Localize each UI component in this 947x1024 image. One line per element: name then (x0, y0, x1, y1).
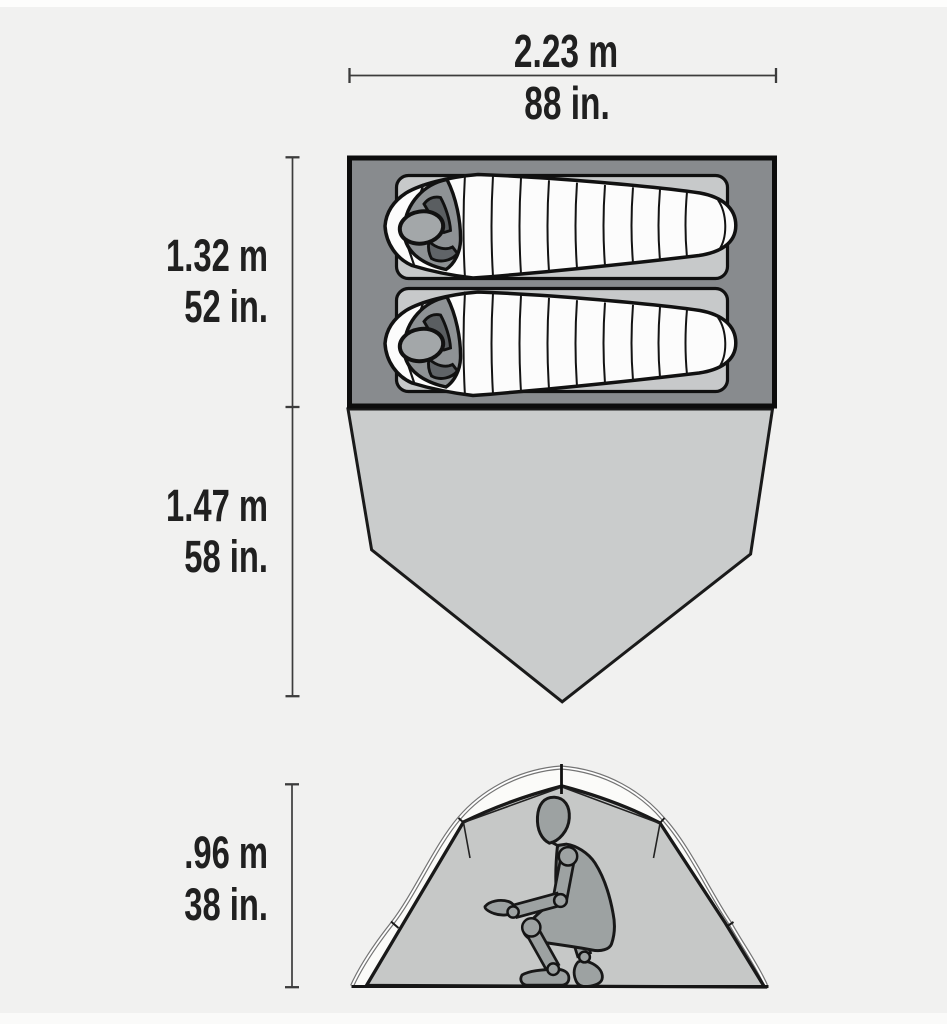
svg-text:88 in.: 88 in. (524, 77, 610, 130)
svg-text:.96 m: .96 m (184, 828, 268, 878)
svg-text:58 in.: 58 in. (184, 532, 268, 582)
svg-text:38 in.: 38 in. (184, 880, 268, 930)
svg-text:52 in.: 52 in. (184, 282, 268, 332)
svg-text:1.32 m: 1.32 m (166, 231, 268, 281)
svg-text:2.23 m: 2.23 m (514, 25, 618, 78)
svg-text:1.47 m: 1.47 m (166, 481, 268, 531)
